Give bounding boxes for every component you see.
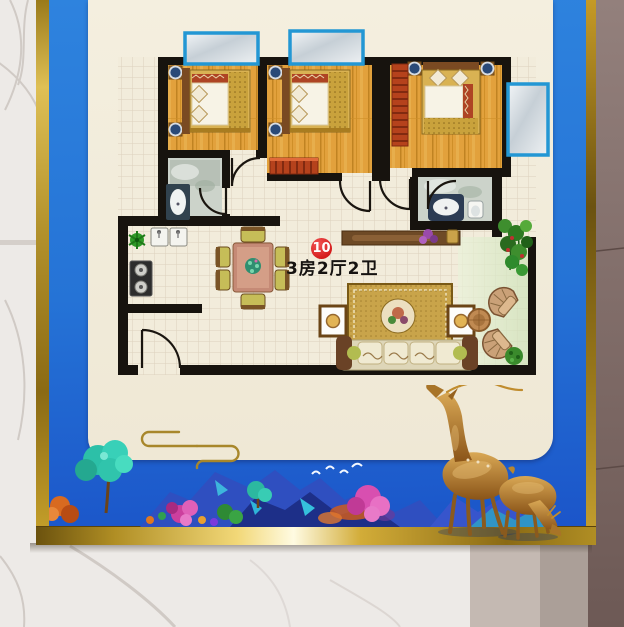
wardrobe-bedroom-2	[270, 158, 318, 174]
stove	[130, 261, 152, 296]
photo-of-framed-floorplan: 10 3房2厅2卫	[0, 0, 624, 627]
living-room-rug	[348, 284, 452, 348]
sofa	[336, 336, 478, 370]
white-birds	[312, 464, 362, 474]
landscape-and-deer-art	[49, 385, 586, 543]
unit-number-badge: 10	[311, 238, 332, 259]
tv-stand	[342, 229, 460, 245]
poster-frame: 10 3房2厅2卫	[36, 0, 596, 545]
lamp-table-left	[320, 306, 346, 336]
tile-groove	[0, 240, 36, 245]
gold-frame-left	[36, 0, 49, 545]
toilet-bathroom-2	[468, 201, 483, 218]
sink-bathroom-1	[166, 184, 190, 220]
wardrobe-bedroom-3	[392, 64, 408, 146]
tub-bathroom-2	[428, 194, 464, 221]
gold-frame-right	[586, 0, 596, 545]
poster-blue-background: 10 3房2厅2卫	[49, 0, 586, 527]
layout-caption: 3房2厅2卫	[286, 258, 379, 280]
